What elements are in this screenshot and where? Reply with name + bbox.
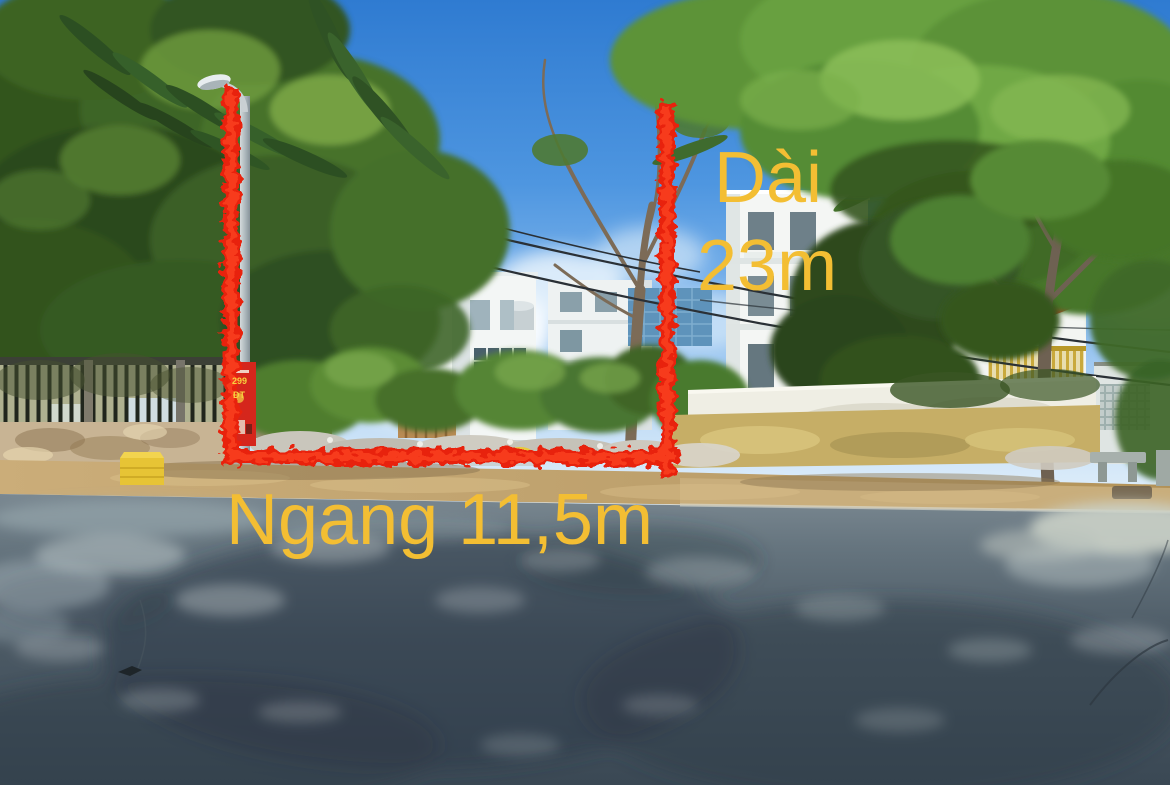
stone-bench xyxy=(1090,450,1170,486)
width-label: Ngang 11,5m xyxy=(226,484,653,556)
yellow-box xyxy=(120,452,164,485)
land-plot-photo: Dài 23m Ngang 11,5m 299 ĐT xyxy=(0,0,1170,785)
left-fence xyxy=(0,353,230,428)
pole-poster-text-1: 299 xyxy=(232,377,247,386)
photo-scene xyxy=(0,0,1170,785)
length-label-line2: 23m xyxy=(697,230,837,302)
pole-poster-text-2: ĐT xyxy=(233,391,245,400)
length-label-line1: Dài xyxy=(714,142,822,214)
dry-grass xyxy=(660,405,1100,470)
